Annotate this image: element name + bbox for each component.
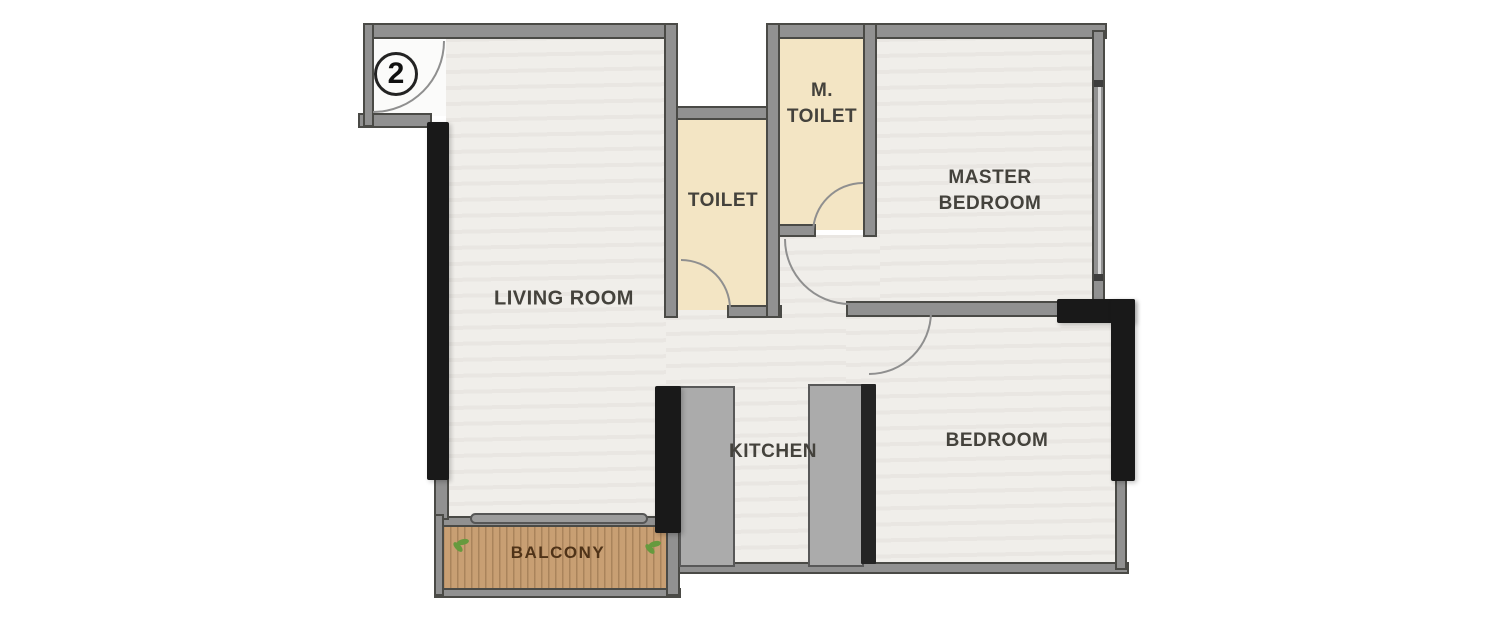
wall-top-left [363,23,678,39]
master-bedroom-label: MASTER BEDROOM [939,165,1042,217]
window-glass-line [1098,84,1101,280]
unit-number: 2 [388,57,405,91]
window-tick [1094,274,1103,281]
master-bedroom-label-line1: MASTER [939,165,1042,191]
m-toilet-label-line2: TOILET [787,104,857,130]
kitchen-left-window [655,386,681,533]
kitchen-label: KITCHEN [729,441,817,463]
wall-balcony-bottom [434,588,681,598]
toilet-label: TOILET [688,190,758,212]
kitchen-counter-left [679,386,735,567]
wall-top-right [766,23,1107,39]
living-room-left-window [427,122,449,480]
master-bedroom-label-line2: BEDROOM [939,191,1042,217]
living-room-floor [446,38,668,520]
m-toilet-label: M. TOILET [787,78,857,130]
unit-number-badge: 2 [374,52,418,96]
floor-plan-image: 2 LIVING ROOM TOILET M. TOILET MASTER BE… [0,0,1500,625]
wall-living-room-right [664,23,678,318]
bedroom-right-window [1111,299,1135,481]
plant-icon [644,538,664,556]
wall-balcony-left [434,514,444,596]
kitchen-counter-right [808,384,864,567]
balcony-label: BALCONY [511,543,606,563]
window-tick [1094,80,1103,87]
wall-bottom [666,562,1129,574]
living-room-label: LIVING ROOM [494,288,634,311]
wall-bedroom-right-lower [1115,474,1127,570]
wall-master-bedroom-right [1092,30,1105,306]
bedroom-label: BEDROOM [946,430,1049,452]
kitchen-bedroom-partition [861,384,876,564]
wall-toilet-top [664,106,780,120]
wall-m-toilet-right [863,23,877,237]
balcony-sliding-door [470,513,648,524]
wall-toilet-right [766,23,780,318]
plant-icon [452,536,472,554]
m-toilet-label-line1: M. [787,78,857,104]
